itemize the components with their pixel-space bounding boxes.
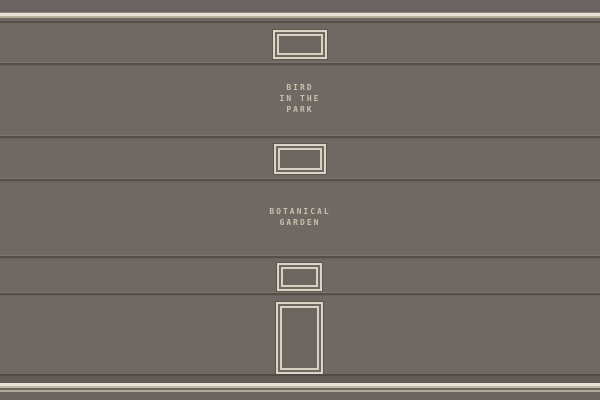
panel-seam-edge [0, 65, 600, 66]
picture-frame-small[interactable] [277, 263, 322, 291]
panel-seam-edge [0, 258, 600, 259]
cornice-shadow-line [0, 21, 600, 23]
picture-frame-small-inner [281, 267, 318, 287]
sign-bird-in-the-park: BIRD IN THE PARK [240, 82, 360, 115]
baseboard-bottom-band [0, 392, 600, 400]
sign-line: PARK [240, 104, 360, 115]
picture-frame-top-inner [277, 34, 323, 55]
sign-line: GARDEN [240, 217, 360, 228]
sign-botanical-garden: BOTANICAL GARDEN [240, 206, 360, 228]
portrait-frame-tall-inner [280, 306, 319, 370]
panel-seam-edge [0, 295, 600, 296]
panel-seam-edge [0, 181, 600, 182]
portrait-frame-tall[interactable] [276, 302, 323, 374]
sign-line: IN THE [240, 93, 360, 104]
game-scene-wall: BIRD IN THE PARK BOTANICAL GARDEN [0, 0, 600, 400]
panel-seam-edge [0, 138, 600, 139]
picture-frame-middle-inner [278, 148, 322, 170]
baseboard-dark-band [0, 376, 600, 383]
sign-line: BIRD [240, 82, 360, 93]
sign-line: BOTANICAL [240, 206, 360, 217]
picture-frame-middle[interactable] [274, 144, 326, 174]
picture-frame-top[interactable] [273, 30, 327, 59]
cornice-top-band [0, 0, 600, 12]
